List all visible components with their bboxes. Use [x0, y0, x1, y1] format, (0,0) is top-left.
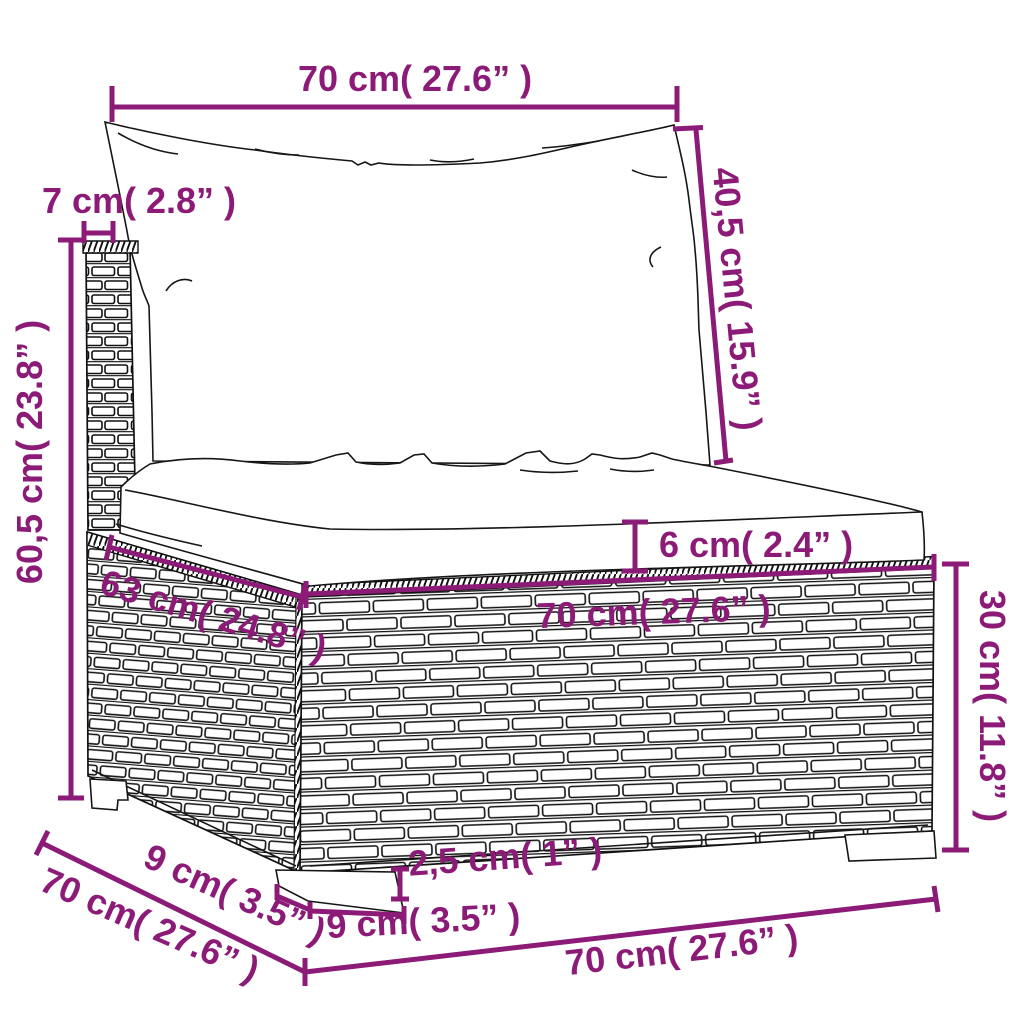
svg-text:7 cm( 2.8” ): 7 cm( 2.8” )	[42, 180, 236, 221]
svg-text:70 cm( 27.6” ): 70 cm( 27.6” )	[298, 58, 532, 99]
svg-text:70 cm( 27.6” ): 70 cm( 27.6” )	[536, 587, 771, 636]
svg-text:60,5 cm( 23.8” ): 60,5 cm( 23.8” )	[9, 320, 50, 584]
svg-text:6 cm( 2.4” ): 6 cm( 2.4” )	[659, 524, 853, 565]
svg-text:30 cm( 11.8” ): 30 cm( 11.8” )	[972, 590, 1013, 822]
